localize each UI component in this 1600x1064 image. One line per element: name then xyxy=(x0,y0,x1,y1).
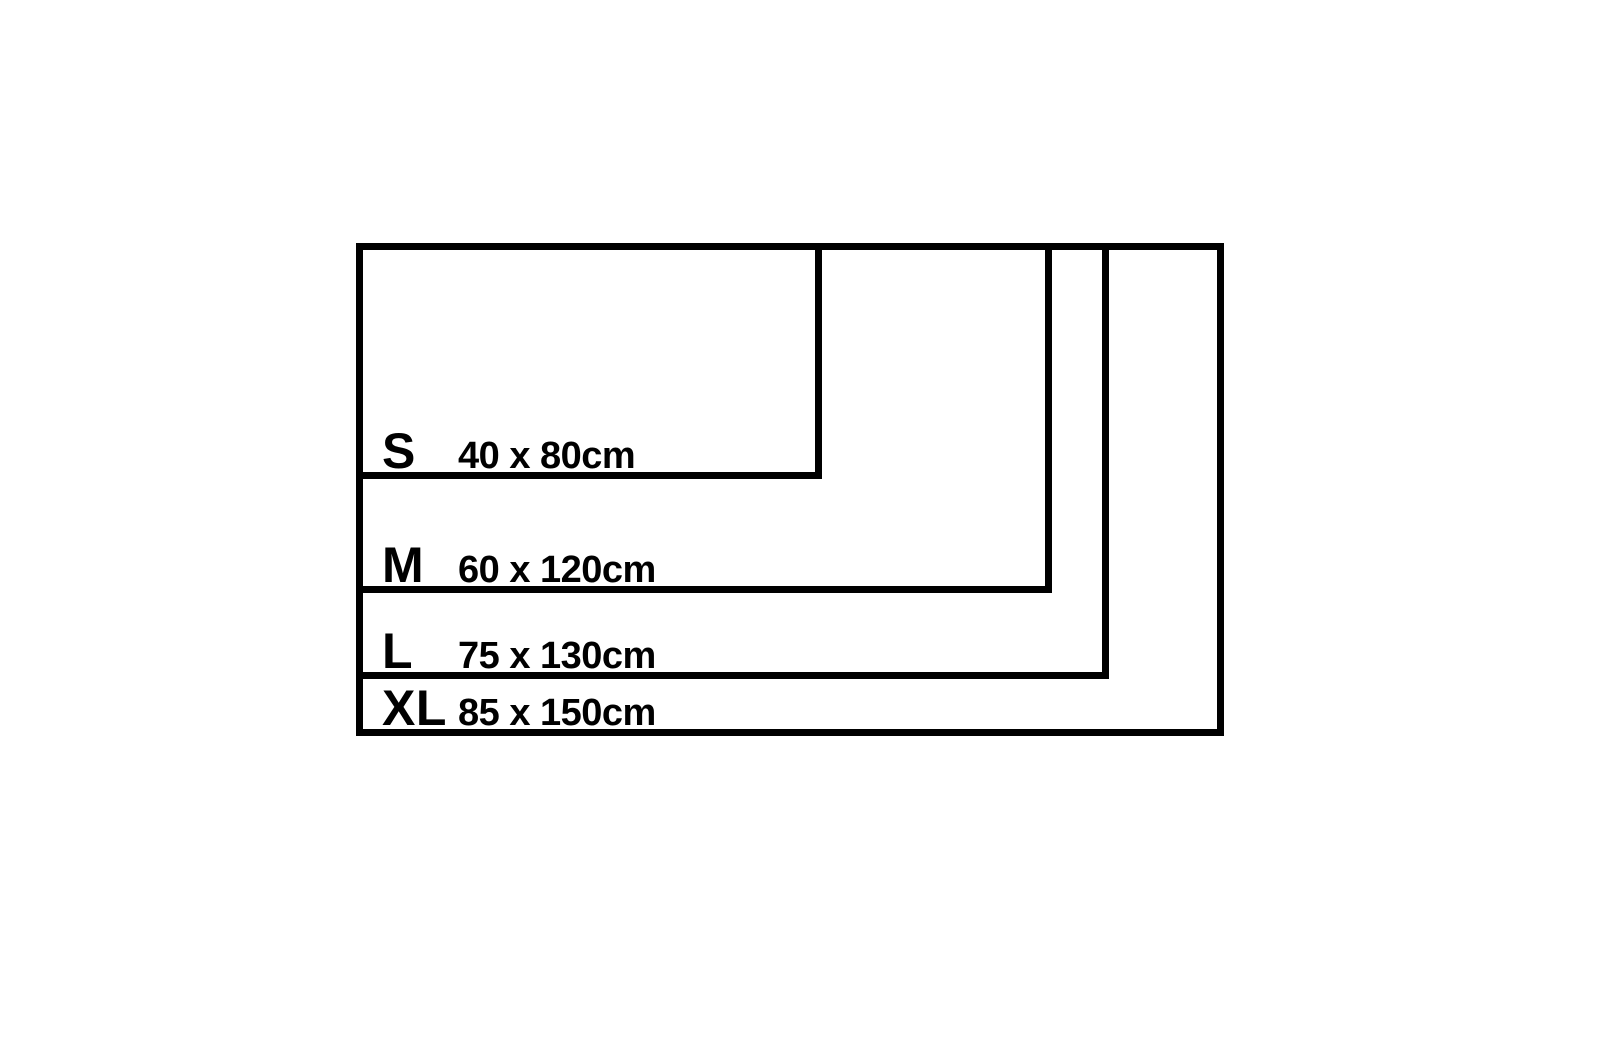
size-letter-m: M xyxy=(382,540,458,590)
size-rect-s: S40 x 80cm xyxy=(356,243,822,479)
size-row-label-xl: XL85 x 150cm xyxy=(382,683,656,733)
size-dims-xl: 85 x 150cm xyxy=(458,692,656,734)
size-row-label-l: L75 x 130cm xyxy=(382,626,656,676)
size-dims-l: 75 x 130cm xyxy=(458,635,656,677)
size-row-label-m: M60 x 120cm xyxy=(382,540,656,590)
size-letter-xl: XL xyxy=(382,683,458,733)
size-chart-diagram: XL85 x 150cm L75 x 130cm M60 x 120cm S40… xyxy=(0,0,1600,1064)
size-dims-s: 40 x 80cm xyxy=(458,435,635,477)
size-letter-s: S xyxy=(382,426,458,476)
size-dims-m: 60 x 120cm xyxy=(458,549,656,591)
size-row-label-s: S40 x 80cm xyxy=(382,426,635,476)
size-letter-l: L xyxy=(382,626,458,676)
